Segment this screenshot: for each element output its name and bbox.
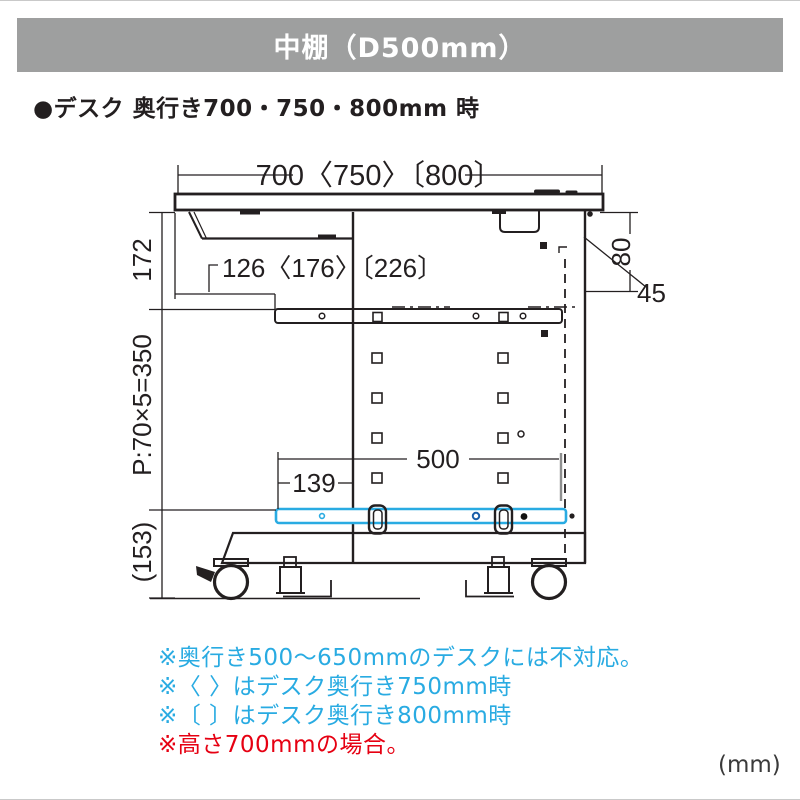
dim-right-80: 80 <box>584 213 638 292</box>
dim-label-45: 45 <box>637 278 666 308</box>
page: 中棚（D500mm） ●デスク 奥行き700・750・800mm 時 <box>0 0 800 800</box>
section-heading: ●デスク 奥行き700・750・800mm 時 <box>33 89 480 123</box>
unit-label: (mm) <box>718 752 781 778</box>
caster-brake-lever <box>196 566 215 582</box>
note-line-2: ※〈 〉はデスク奥行き750mm時 <box>158 673 643 702</box>
base-frame <box>222 533 585 563</box>
cable-bracket <box>500 211 539 232</box>
header-bar: 中棚（D500mm） <box>17 18 783 72</box>
notes-block: ※奥行き500〜650mmのデスクには不対応。 ※〈 〉はデスク奥行き750mm… <box>158 644 643 760</box>
dim-label-172: 172 <box>127 238 157 281</box>
page-title: 中棚（D500mm） <box>273 26 526 65</box>
dim-label-139: 139 <box>292 468 335 498</box>
note-line-3: ※〔 〕はデスク奥行き800mm時 <box>158 702 643 731</box>
desk-dimension-diagram: 700〈750〉〔800〕 172 P:70×5=350 (153) 126〈1… <box>0 141 800 621</box>
cross-rail <box>275 307 580 323</box>
middle-shelf-highlight <box>276 506 566 534</box>
caster-left <box>196 559 248 599</box>
dim-label-tray-offset: 126〈176〉〔226〕 <box>222 253 443 283</box>
dim-shelf-offset: 139 <box>278 468 353 498</box>
dim-label-500: 500 <box>416 444 459 474</box>
dim-label-top-width: 700〈750〉〔800〕 <box>256 160 503 192</box>
keyboard-tray <box>189 211 506 239</box>
dim-label-80: 80 <box>606 238 636 267</box>
caster-right <box>532 559 566 599</box>
dim-label-pitch: P:70×5=350 <box>127 334 157 476</box>
dim-label-153: (153) <box>127 522 157 583</box>
note-line-4: ※高さ700mmの場合。 <box>158 731 643 760</box>
note-line-1: ※奥行き500〜650mmのデスクには不対応。 <box>158 644 643 673</box>
dim-tray-offset: 126〈176〉〔226〕 <box>175 213 443 309</box>
